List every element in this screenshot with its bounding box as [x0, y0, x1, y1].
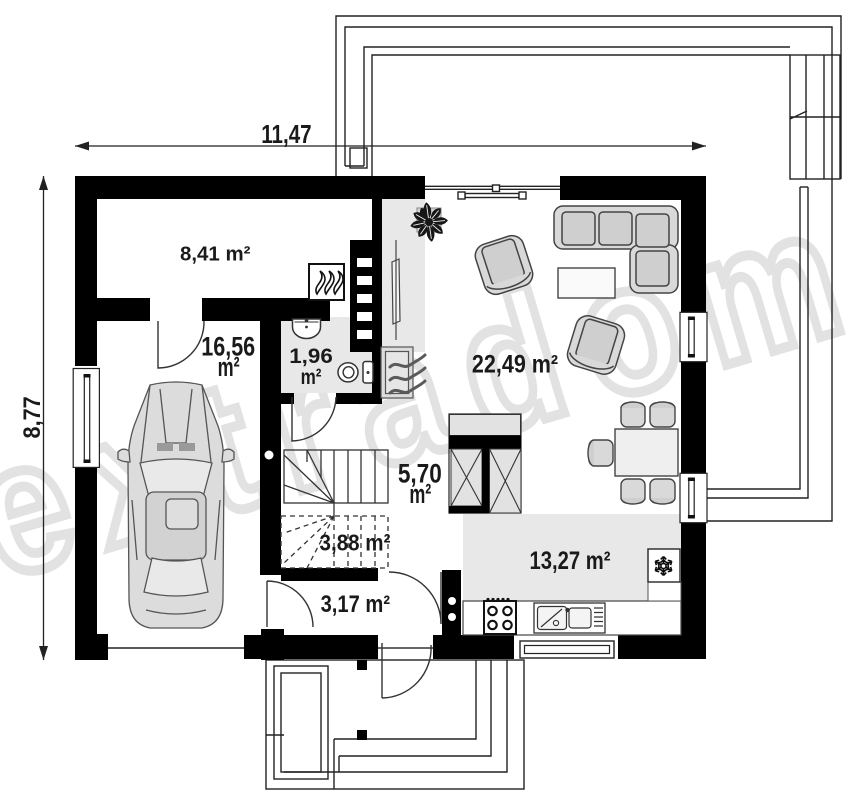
svg-text:m²: m²: [409, 478, 431, 509]
svg-text:13,27 m²: 13,27 m²: [530, 547, 611, 574]
svg-text:22,49 m²: 22,49 m²: [472, 350, 558, 378]
svg-text:3,17 m²: 3,17 m²: [321, 590, 390, 617]
svg-text:m²: m²: [218, 351, 240, 382]
svg-text:1,96: 1,96: [289, 343, 333, 368]
svg-text:3,88 m²: 3,88 m²: [320, 529, 391, 555]
svg-text:11,47: 11,47: [261, 120, 311, 149]
svg-text:8,41 m²: 8,41 m²: [180, 244, 251, 266]
svg-text:m²: m²: [301, 365, 322, 389]
svg-text:8,77: 8,77: [18, 396, 45, 438]
